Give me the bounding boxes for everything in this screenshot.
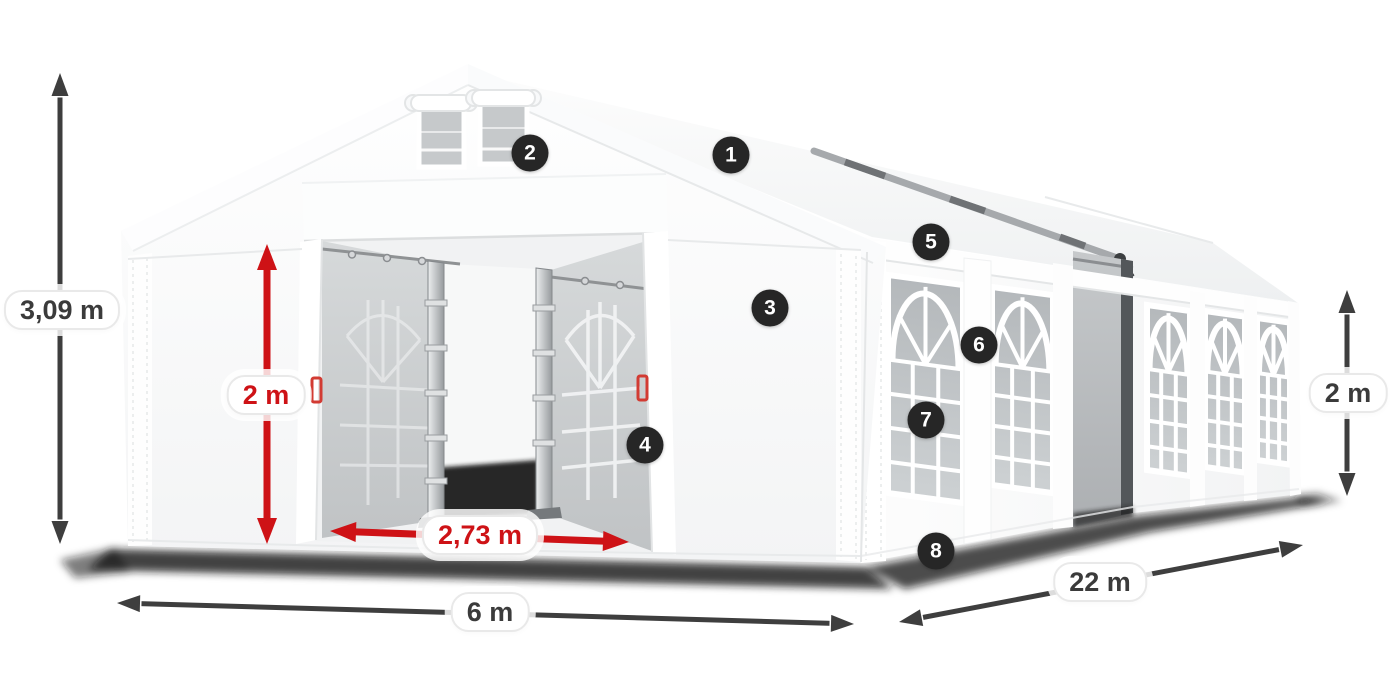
door-opening [314,233,652,552]
callout-badge-3[interactable]: 3 [752,290,789,327]
badge-number: 1 [725,143,737,167]
callout-badge-1[interactable]: 1 [713,137,750,174]
callout-badge-8[interactable]: 8 [918,533,955,570]
badge-number: 5 [925,230,937,254]
dim-value: 2 m [1325,378,1372,408]
dim-label-side-height: 2 m [1309,373,1388,413]
badge-number: 3 [764,296,776,320]
badge-number: 4 [639,433,651,457]
dim-value: 22 m [1069,567,1131,597]
tent-illustration [0,0,1400,700]
badge-number: 8 [930,539,942,563]
badge-number: 6 [973,333,985,357]
badge-number: 2 [524,141,536,165]
badge-number: 7 [920,408,932,432]
dim-label-total-height: 3,09 m [4,290,120,330]
tent-dimension-diagram: 3,09 m 2 m 2,73 m 6 m 22 m 2 m 1 2 3 4 5… [0,0,1400,700]
dim-label-side-length: 22 m [1053,562,1147,602]
callout-badge-2[interactable]: 2 [512,135,549,172]
door-header-beam [302,174,668,241]
dim-value: 3,09 m [20,295,104,325]
dim-value: 6 m [467,597,514,627]
callout-badge-4[interactable]: 4 [627,427,664,464]
open-door-leaf-left [322,241,432,538]
dim-label-door-width: 2,73 m [422,515,538,555]
dim-label-front-width: 6 m [451,592,530,632]
dim-value: 2,73 m [438,520,522,550]
callout-badge-6[interactable]: 6 [961,327,998,364]
dim-label-door-height: 2 m [227,375,306,415]
dim-value: 2 m [243,380,290,410]
callout-badge-5[interactable]: 5 [913,224,950,261]
callout-badge-7[interactable]: 7 [908,402,945,439]
